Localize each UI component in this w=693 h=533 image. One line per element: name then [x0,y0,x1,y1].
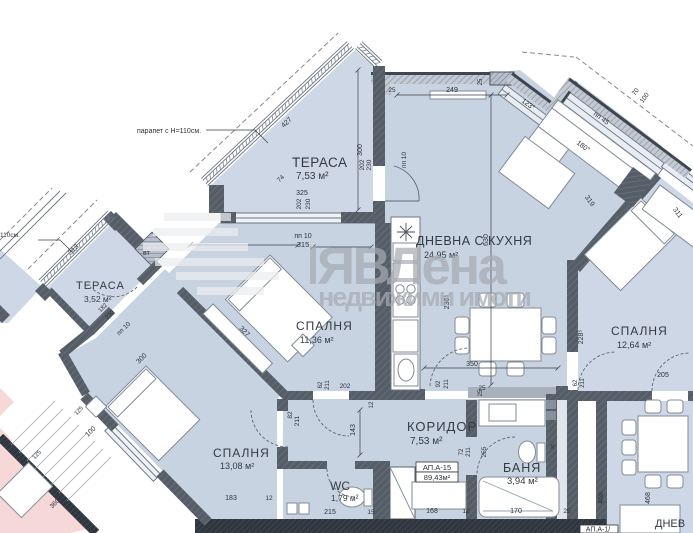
svg-text:12: 12 [462,508,470,515]
svg-text:15: 15 [367,509,375,516]
svg-text:205: 205 [657,372,669,379]
svg-text:СПАЛНЯ: СПАЛНЯ [213,446,270,460]
svg-text:255: 255 [481,446,488,457]
svg-text:12: 12 [265,495,273,502]
svg-text:АП.А-15: АП.А-15 [423,463,451,472]
svg-text:пп 10: пп 10 [401,152,408,168]
svg-text:89,43м²: 89,43м² [424,473,451,482]
svg-text:468: 468 [645,492,652,504]
svg-text:143: 143 [350,424,357,436]
svg-text:211: 211 [580,378,586,388]
svg-text:7,53 м²: 7,53 м² [410,436,443,447]
svg-text:202: 202 [359,159,366,170]
svg-text:211: 211 [444,379,450,389]
svg-text:211: 211 [466,447,472,457]
svg-text:ТЕРАСА: ТЕРАСА [76,280,125,292]
svg-text:183: 183 [225,495,237,502]
svg-text:211: 211 [325,380,331,390]
svg-text:БАНЯ: БАНЯ [503,461,541,475]
svg-text:25: 25 [388,87,396,94]
svg-text:11,36 м²: 11,36 м² [300,335,334,345]
svg-text:62: 62 [318,381,324,388]
svg-text:пп 10: пп 10 [294,233,311,240]
svg-text:168: 168 [426,508,438,515]
svg-text:468: 468 [598,492,605,504]
svg-text:350: 350 [466,361,478,368]
svg-text:СПАЛНЯ: СПАЛНЯ [296,319,353,333]
svg-text:315: 315 [297,240,310,249]
svg-text:вт: вт [143,250,151,257]
svg-text:ДНЕВ: ДНЕВ [655,518,685,530]
svg-text:228⁵: 228⁵ [578,330,585,345]
svg-text:25: 25 [478,78,484,85]
svg-text:82: 82 [287,411,294,419]
svg-text:300: 300 [357,144,364,156]
svg-text:парапет с Н=110см.: парапет с Н=110см. [137,128,201,135]
svg-text:62: 62 [573,379,579,386]
svg-text:230: 230 [305,198,312,209]
svg-text:25: 25 [478,389,484,396]
svg-text:3,52 м²: 3,52 м² [84,294,112,304]
svg-text:КОРИДОР: КОРИДОР [407,419,477,434]
svg-text:АП.А-1/: АП.А-1/ [586,527,610,533]
svg-text:7,53 м²: 7,53 м² [296,171,329,182]
svg-text:215: 215 [324,509,336,516]
svg-text:211: 211 [294,415,301,426]
svg-text:1,79 м²: 1,79 м² [331,493,359,503]
svg-text:92: 92 [436,380,442,387]
svg-text:недвижими имоти: недвижими имоти [318,282,532,312]
svg-text:12: 12 [369,401,375,408]
svg-text:13,08 м²: 13,08 м² [220,461,254,471]
svg-text:202: 202 [340,383,351,390]
svg-text:ТЕРАСА: ТЕРАСА [292,155,348,170]
svg-text:12,64 м²: 12,64 м² [617,340,651,350]
svg-text:325: 325 [296,190,308,197]
svg-text:WC: WC [330,479,350,493]
svg-text:110см.: 110см. [0,232,20,239]
svg-text:СПАЛНЯ: СПАЛНЯ [611,324,668,338]
svg-text:249: 249 [446,87,458,94]
svg-text:К: К [551,445,555,451]
svg-text:170: 170 [510,508,522,515]
svg-text:202: 202 [296,198,303,209]
svg-text:3,94 м²: 3,94 м² [507,476,538,487]
svg-text:230: 230 [366,159,373,170]
svg-text:25: 25 [563,508,571,515]
svg-text:72: 72 [459,448,465,455]
